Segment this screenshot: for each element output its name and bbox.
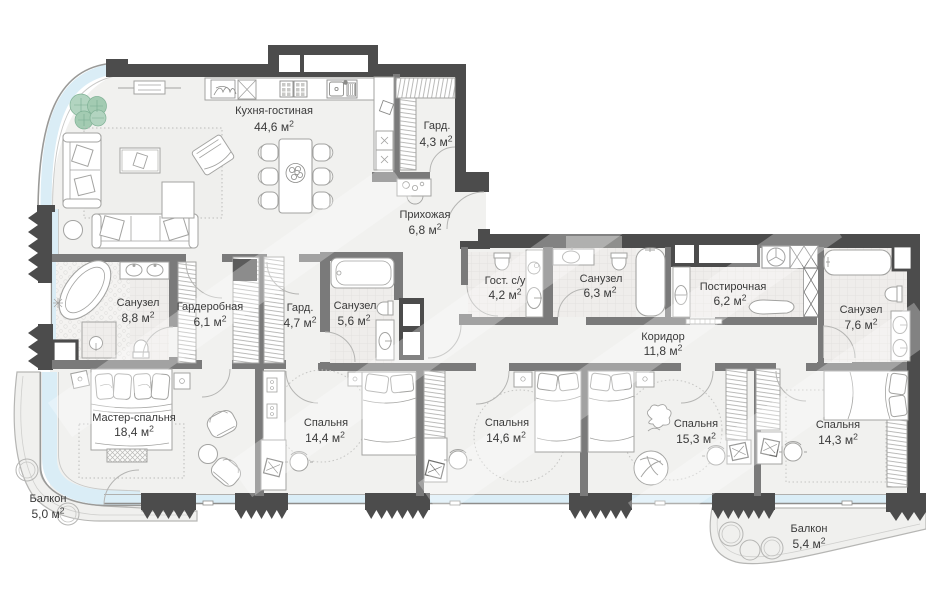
svg-text:Прихожая: Прихожая: [400, 209, 451, 221]
svg-text:Спальня: Спальня: [674, 418, 718, 430]
svg-text:Спальня: Спальня: [304, 417, 348, 429]
svg-text:11,8 м2: 11,8 м2: [644, 343, 683, 359]
svg-text:Гард.: Гард.: [287, 302, 314, 314]
svg-text:Коридор: Коридор: [641, 331, 684, 343]
svg-text:Мастер-спальня: Мастер-спальня: [92, 412, 176, 424]
svg-text:Санузел: Санузел: [334, 300, 377, 312]
svg-text:14,4 м2: 14,4 м2: [305, 430, 345, 446]
svg-text:Кухня-гостиная: Кухня-гостиная: [235, 105, 313, 117]
svg-text:Гард.: Гард.: [424, 120, 451, 132]
svg-text:18,4 м2: 18,4 м2: [114, 424, 154, 440]
svg-text:Балкон: Балкон: [30, 493, 67, 505]
svg-text:Санузел: Санузел: [580, 273, 623, 285]
svg-text:Санузел: Санузел: [117, 297, 160, 309]
svg-text:Санузел: Санузел: [840, 304, 883, 316]
svg-text:15,3 м2: 15,3 м2: [676, 431, 716, 447]
svg-text:Постирочная: Постирочная: [700, 281, 767, 293]
svg-text:Гардеробная: Гардеробная: [177, 301, 244, 313]
svg-text:Спальня: Спальня: [485, 417, 529, 429]
svg-text:Гост. с/у: Гост. с/у: [485, 275, 526, 287]
svg-text:14,3 м2: 14,3 м2: [818, 432, 858, 448]
svg-text:44,6 м2: 44,6 м2: [254, 119, 294, 135]
svg-text:Спальня: Спальня: [816, 419, 860, 431]
svg-text:Балкон: Балкон: [791, 523, 828, 535]
svg-text:14,6 м2: 14,6 м2: [486, 430, 526, 446]
